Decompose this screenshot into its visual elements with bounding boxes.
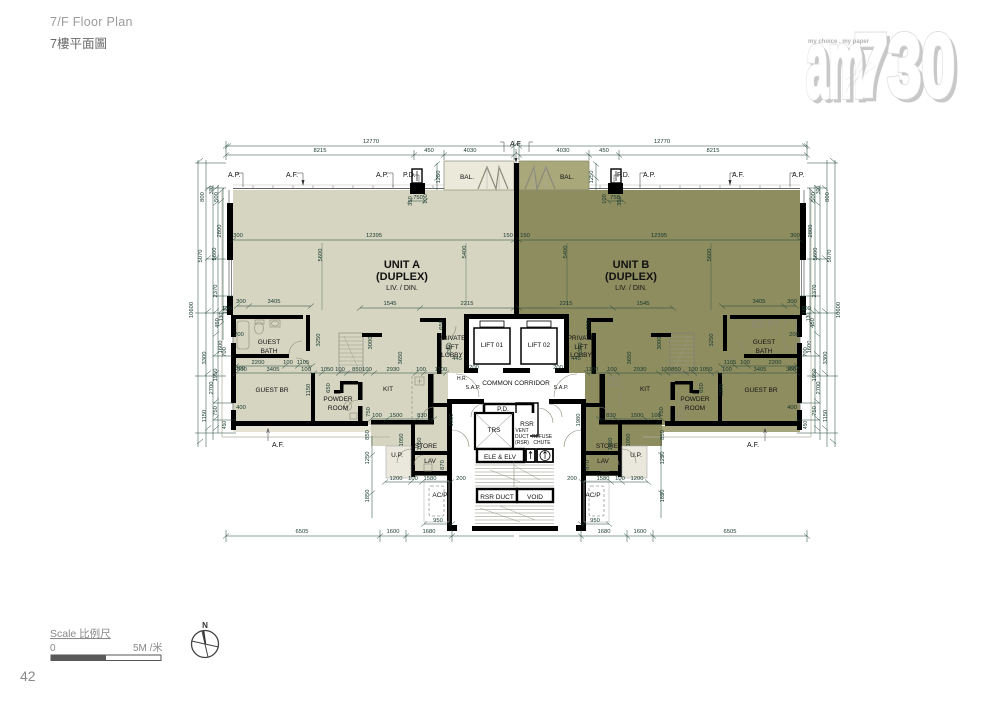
svg-text:850: 850: [352, 367, 362, 373]
svg-text:1050: 1050: [608, 438, 614, 451]
svg-text:A.P.: A.P.: [792, 172, 804, 179]
svg-text:2800: 2800: [217, 225, 223, 238]
svg-text:BAL.: BAL.: [460, 174, 474, 181]
svg-text:850: 850: [365, 430, 371, 440]
svg-text:H.R.: H.R.: [457, 376, 467, 382]
svg-text:200: 200: [234, 332, 244, 338]
svg-text:750: 750: [366, 407, 372, 417]
svg-text:100: 100: [802, 306, 808, 315]
svg-text:COMMON CORRIDOR: COMMON CORRIDOR: [482, 380, 550, 387]
svg-text:1950: 1950: [213, 369, 219, 382]
svg-text:200: 200: [456, 476, 466, 482]
svg-text:LAV: LAV: [424, 458, 436, 465]
svg-text:AC/P: AC/P: [432, 492, 447, 499]
svg-text:450: 450: [222, 421, 228, 430]
svg-text:1250: 1250: [660, 452, 666, 465]
svg-text:3000: 3000: [657, 337, 663, 350]
svg-text:2930: 2930: [387, 367, 400, 373]
svg-text:100: 100: [722, 367, 732, 373]
svg-text:300: 300: [233, 233, 243, 239]
svg-text:750: 750: [413, 195, 423, 201]
svg-text:7/F Floor Plan: 7/F Floor Plan: [50, 15, 133, 29]
svg-text:200: 200: [553, 365, 563, 371]
svg-text:2200: 2200: [769, 360, 782, 366]
svg-text:LIV. / DIN.: LIV. / DIN.: [615, 285, 647, 292]
svg-text:UNIT A: UNIT A: [384, 259, 420, 271]
svg-text:5070: 5070: [827, 250, 833, 263]
svg-text:1980: 1980: [576, 414, 582, 427]
svg-text:12770: 12770: [363, 139, 379, 145]
svg-text:N: N: [202, 621, 208, 630]
svg-text:200: 200: [567, 476, 577, 482]
svg-text:450: 450: [215, 318, 221, 328]
svg-text:300: 300: [235, 366, 245, 372]
svg-text:UNIT B: UNIT B: [613, 259, 650, 271]
svg-text:3405: 3405: [754, 367, 767, 373]
svg-text:1545: 1545: [637, 301, 650, 307]
svg-text:1100: 1100: [586, 367, 598, 373]
svg-text:100: 100: [408, 476, 418, 482]
svg-text:850: 850: [671, 367, 681, 373]
svg-text:2700: 2700: [816, 382, 822, 395]
svg-text:A.F.: A.F.: [732, 172, 744, 179]
svg-text:7樓平面圖: 7樓平面圖: [50, 36, 107, 51]
svg-text:1250: 1250: [589, 171, 595, 184]
svg-text:3650: 3650: [398, 352, 404, 365]
svg-text:500: 500: [214, 192, 220, 202]
svg-text:800: 800: [200, 192, 206, 202]
svg-text:A.F.: A.F.: [747, 442, 759, 449]
svg-text:650: 650: [586, 320, 592, 330]
svg-text:3650: 3650: [627, 352, 633, 365]
svg-text:1850: 1850: [365, 490, 371, 503]
svg-text:POWDER: POWDER: [323, 396, 353, 403]
svg-text:5M /米: 5M /米: [133, 641, 162, 654]
svg-text:750: 750: [610, 195, 620, 201]
svg-text:2200: 2200: [252, 360, 265, 366]
svg-text:2215: 2215: [461, 301, 474, 307]
svg-text:1150: 1150: [202, 410, 208, 422]
svg-text:ELE & ELV: ELE & ELV: [484, 454, 517, 461]
svg-text:ROOM: ROOM: [328, 405, 348, 412]
svg-text:my choice . my paper: my choice . my paper: [808, 39, 870, 45]
svg-text:6505: 6505: [296, 529, 309, 535]
svg-text:A.P.: A.P.: [643, 172, 655, 179]
svg-text:5400: 5400: [462, 246, 468, 259]
svg-text:100: 100: [607, 367, 617, 373]
svg-text:700: 700: [222, 347, 228, 357]
svg-text:LIFT 01: LIFT 01: [481, 342, 504, 349]
svg-text:1050: 1050: [700, 367, 713, 373]
svg-text:AC/P: AC/P: [585, 492, 600, 499]
svg-text:1100: 1100: [435, 367, 447, 373]
svg-text:200: 200: [789, 332, 799, 338]
svg-text:5400: 5400: [563, 246, 569, 259]
svg-text:100: 100: [661, 367, 671, 373]
svg-text:300: 300: [787, 299, 797, 305]
svg-text:2370: 2370: [812, 285, 818, 298]
svg-text:2370: 2370: [213, 285, 219, 298]
svg-text:1980: 1980: [449, 414, 455, 427]
svg-text:4030: 4030: [557, 148, 570, 154]
svg-text:LIV. / DIN.: LIV. / DIN.: [386, 285, 418, 292]
svg-text:1105: 1105: [724, 360, 736, 366]
svg-text:650: 650: [699, 383, 705, 393]
svg-text:730: 730: [854, 15, 955, 115]
svg-text:P.D.: P.D.: [403, 172, 416, 179]
svg-text:1500: 1500: [390, 413, 403, 419]
svg-text:100: 100: [615, 476, 625, 482]
svg-text:A.P.: A.P.: [376, 172, 388, 179]
svg-text:PRIVATE: PRIVATE: [568, 335, 596, 342]
svg-text:100: 100: [362, 367, 372, 373]
svg-text:1150: 1150: [306, 384, 312, 396]
svg-text:850: 850: [660, 430, 666, 440]
svg-text:100: 100: [688, 367, 698, 373]
svg-text:P.D.: P.D.: [617, 172, 630, 179]
svg-text:KIT: KIT: [383, 386, 393, 393]
svg-text:A.F.: A.F.: [272, 442, 284, 449]
svg-text:1050: 1050: [626, 434, 632, 447]
svg-text:870: 870: [585, 460, 591, 470]
svg-text:1680: 1680: [598, 529, 611, 535]
svg-text:870: 870: [440, 460, 446, 470]
svg-text:450: 450: [424, 148, 434, 154]
svg-text:445: 445: [452, 356, 462, 362]
svg-text:300: 300: [790, 233, 800, 239]
svg-text:445: 445: [571, 356, 581, 362]
svg-text:8215: 8215: [314, 148, 327, 154]
svg-text:1105: 1105: [297, 360, 309, 366]
svg-text:42: 42: [20, 668, 36, 684]
svg-text:LAV: LAV: [597, 458, 609, 465]
svg-text:8215: 8215: [707, 148, 720, 154]
svg-text:300: 300: [788, 366, 798, 372]
svg-text:1200: 1200: [390, 476, 403, 482]
svg-text:1200: 1200: [631, 476, 644, 482]
svg-text:2930: 2930: [634, 367, 647, 373]
svg-text:BATH: BATH: [756, 348, 773, 355]
svg-text:BATH: BATH: [261, 348, 278, 355]
svg-text:U.P.: U.P.: [630, 452, 642, 459]
svg-text:700: 700: [803, 347, 809, 357]
svg-text:750: 750: [812, 406, 818, 416]
svg-text:2800: 2800: [808, 225, 814, 238]
svg-text:1150: 1150: [719, 384, 725, 396]
svg-text:KIT: KIT: [640, 386, 650, 393]
svg-text:5600: 5600: [212, 248, 218, 261]
svg-text:3350: 3350: [578, 343, 584, 356]
svg-text:10600: 10600: [189, 302, 195, 318]
svg-text:1600: 1600: [387, 529, 400, 535]
svg-text:500: 500: [811, 192, 817, 202]
svg-text:1580: 1580: [597, 476, 610, 482]
svg-text:5600: 5600: [318, 249, 324, 262]
svg-text:1250: 1250: [436, 171, 442, 184]
svg-text:800: 800: [825, 192, 831, 202]
svg-text:(DUPLEX): (DUPLEX): [376, 271, 428, 283]
svg-text:100: 100: [602, 194, 608, 204]
svg-text:650: 650: [439, 320, 445, 330]
svg-text:ROOM: ROOM: [685, 405, 705, 412]
svg-text:1850: 1850: [660, 490, 666, 503]
svg-text:5600: 5600: [707, 249, 713, 262]
svg-text:150: 150: [520, 233, 530, 239]
svg-text:450: 450: [803, 421, 809, 430]
svg-text:100: 100: [301, 367, 311, 373]
svg-text:(DUPLEX): (DUPLEX): [605, 271, 657, 283]
svg-text:3250: 3250: [316, 334, 322, 347]
svg-text:5600: 5600: [813, 248, 819, 261]
svg-text:12395: 12395: [651, 233, 667, 239]
svg-text:A.F.: A.F.: [510, 141, 522, 148]
svg-text:450: 450: [810, 318, 816, 328]
svg-text:400: 400: [787, 405, 797, 411]
svg-text:3000: 3000: [368, 337, 374, 350]
svg-text:200: 200: [469, 365, 479, 371]
svg-text:1050: 1050: [399, 434, 405, 447]
svg-text:RSR DUCT: RSR DUCT: [480, 494, 514, 501]
svg-text:950: 950: [433, 518, 443, 524]
svg-text:2215: 2215: [560, 301, 573, 307]
svg-text:LIFT 02: LIFT 02: [528, 342, 551, 349]
svg-text:BAL.: BAL.: [560, 174, 574, 181]
svg-text:2700: 2700: [209, 382, 215, 395]
svg-text:CHUTE: CHUTE: [533, 440, 551, 446]
svg-text:300: 300: [236, 299, 246, 305]
svg-text:VOID: VOID: [527, 494, 543, 501]
svg-text:3405: 3405: [267, 367, 280, 373]
svg-text:10600: 10600: [836, 302, 842, 318]
svg-text:P.D.: P.D.: [497, 406, 509, 413]
svg-text:100: 100: [416, 367, 426, 373]
svg-text:5070: 5070: [198, 250, 204, 263]
svg-text:1500: 1500: [631, 413, 644, 419]
svg-text:3250: 3250: [709, 334, 715, 347]
svg-text:150: 150: [503, 233, 513, 239]
svg-text:450: 450: [599, 148, 609, 154]
svg-text:6505: 6505: [724, 529, 737, 535]
svg-text:S.A.P.: S.A.P.: [466, 385, 481, 391]
svg-text:750: 750: [659, 407, 665, 417]
svg-text:830: 830: [417, 413, 427, 419]
svg-text:400: 400: [236, 405, 246, 411]
svg-text:100: 100: [740, 360, 750, 366]
svg-text:Scale 比例尺: Scale 比例尺: [50, 627, 111, 640]
svg-text:1950: 1950: [812, 369, 818, 382]
svg-text:GUEST BR: GUEST BR: [255, 387, 288, 394]
svg-text:1545: 1545: [384, 301, 397, 307]
svg-text:GUEST: GUEST: [753, 339, 775, 346]
svg-text:0: 0: [50, 643, 56, 654]
svg-text:650: 650: [326, 383, 332, 393]
svg-text:100: 100: [335, 367, 345, 373]
svg-text:3300: 3300: [202, 352, 208, 365]
svg-text:RSR: RSR: [520, 421, 534, 428]
svg-text:3405: 3405: [268, 299, 281, 305]
svg-text:950: 950: [590, 518, 600, 524]
svg-text:3405: 3405: [753, 299, 766, 305]
svg-text:PRIVATE: PRIVATE: [439, 335, 467, 342]
svg-text:1600: 1600: [634, 529, 647, 535]
svg-text:GUEST: GUEST: [258, 339, 280, 346]
svg-text:100: 100: [372, 413, 382, 419]
svg-text:1580: 1580: [424, 476, 437, 482]
svg-text:(RSR): (RSR): [515, 440, 529, 446]
svg-text:GUEST BR: GUEST BR: [744, 387, 777, 394]
svg-text:4030: 4030: [464, 148, 477, 154]
svg-text:830: 830: [606, 413, 616, 419]
svg-text:POWDER: POWDER: [680, 396, 710, 403]
svg-text:A.P.: A.P.: [228, 172, 240, 179]
svg-text:1050: 1050: [417, 438, 423, 451]
svg-text:3300: 3300: [823, 352, 829, 365]
svg-text:1150: 1150: [823, 410, 829, 422]
svg-text:3350: 3350: [447, 343, 453, 356]
svg-text:S.A.P.: S.A.P.: [554, 385, 569, 391]
svg-text:1250: 1250: [365, 452, 371, 465]
svg-text:U.P.: U.P.: [391, 452, 403, 459]
svg-text:100: 100: [283, 360, 293, 366]
svg-text:12770: 12770: [654, 139, 670, 145]
svg-text:100: 100: [223, 306, 229, 315]
svg-text:100: 100: [423, 194, 429, 204]
svg-text:TRS: TRS: [488, 427, 502, 434]
svg-text:A.F.: A.F.: [286, 172, 298, 179]
svg-text:1680: 1680: [423, 529, 436, 535]
svg-text:12395: 12395: [366, 233, 382, 239]
svg-text:750: 750: [213, 406, 219, 416]
svg-text:1050: 1050: [321, 367, 334, 373]
